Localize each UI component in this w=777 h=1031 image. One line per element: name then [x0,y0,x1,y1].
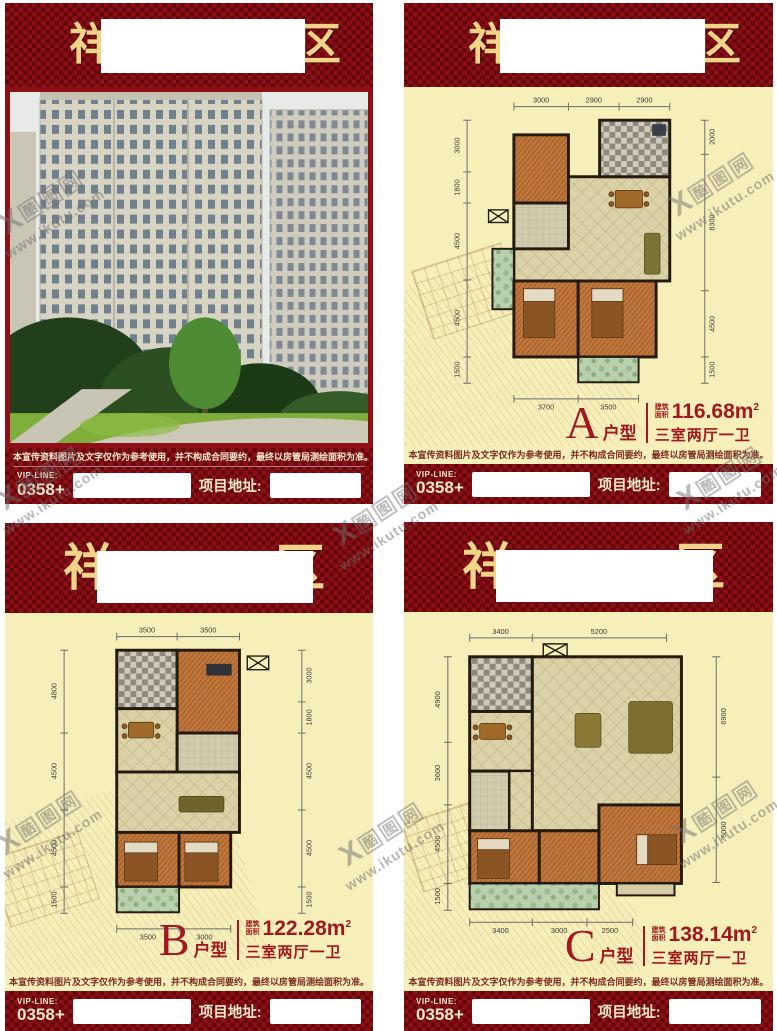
plan-type-suffix: 户型 [194,936,228,961]
shaft-symbol [247,656,268,670]
address-label: 项目地址: [598,474,661,495]
svg-text:2900: 2900 [636,96,652,105]
area-value: 138.14m2 [669,924,757,945]
card3-footer: VIP-LINE: 0358+ 项目地址: [5,991,373,1031]
svg-text:4500: 4500 [452,233,461,249]
label-divider [646,403,648,443]
card1-header: 祥 区 [5,3,373,87]
vip-line: VIP-LINE: 0358+ [17,998,65,1024]
flyer-card-plan-b: 祥 区 [5,523,373,1031]
svg-text:1800: 1800 [305,709,314,725]
redaction-box-phone [73,473,191,498]
disclaimer-text: 本宣传资料图片及文字仅作为参考使用，并不构成合同要约，最终以房管局测绘面积为准。 [404,974,773,991]
redaction-box-title [101,19,305,73]
redaction-box-title [97,551,313,603]
plan-type-suffix: 户型 [600,942,634,967]
vip-line: VIP-LINE: 0358+ [416,998,464,1024]
floorplan-a: 3000 2900 2900 3000 1800 4500 4500 1500 … [434,91,736,414]
svg-text:6000: 6000 [719,821,728,838]
contact-row: VIP-LINE: 0358+ 项目地址: [5,467,373,504]
plan-label-b: B 户型 建筑面积 122.28m2 三室两厅一卫 [159,918,351,962]
plan-label-c: C 户型 建筑面积 138.14m2 三室两厅一卫 [565,924,757,968]
svg-text:1500: 1500 [433,888,442,905]
svg-text:5200: 5200 [591,627,608,636]
card2-header: 祥 区 [404,3,773,87]
svg-text:3600: 3600 [433,765,442,782]
svg-text:3000: 3000 [533,96,549,105]
shaft-symbol [543,644,567,657]
svg-text:3000: 3000 [305,667,314,683]
card2-footer: VIP-LINE: 0358+ 项目地址: [404,464,773,504]
disclaimer-text: 本宣传资料图片及文字仅作为参考使用，并不构成合同要约，最终以房管局测绘面积为准。 [5,974,373,991]
flyer-card-plan-c: 祥 区 [404,522,773,1031]
redaction-box-title [500,19,705,73]
area-caption: 建筑面积 [246,921,260,937]
svg-text:1500: 1500 [708,361,717,377]
svg-text:2900: 2900 [586,96,602,105]
room-config: 三室两厅一卫 [652,947,757,968]
label-divider [643,926,645,966]
svg-text:1500: 1500 [305,891,314,907]
svg-text:3400: 3400 [492,627,509,636]
redaction-box-phone [472,472,590,497]
area-caption: 建筑面积 [652,927,666,943]
svg-text:3400: 3400 [492,926,509,935]
redaction-box-title [496,550,713,602]
redaction-box-address [669,999,761,1024]
svg-text:4500: 4500 [49,840,58,856]
plan-letter: A [565,403,598,442]
area-value: 122.28m2 [263,918,351,939]
redaction-box-address [270,473,361,498]
vip-line: VIP-LINE: 0358+ [416,471,464,497]
residential-photo [10,92,368,443]
redaction-box-phone [472,999,590,1024]
svg-text:1500: 1500 [49,891,58,907]
svg-text:4800: 4800 [49,683,58,699]
disclaimer-text: 本宣传资料图片及文字仅作为参考使用，并不构成合同要约，最终以房管局测绘面积为准。 [404,447,773,464]
plan-letter: B [159,920,190,959]
area-value: 116.68m2 [672,401,759,422]
svg-text:4500: 4500 [49,763,58,779]
svg-text:8300: 8300 [708,214,717,230]
svg-text:2000: 2000 [708,129,717,145]
svg-text:3500: 3500 [200,626,216,635]
room-config: 三室两厅一卫 [246,941,351,962]
shaft-symbol [489,210,508,223]
card1-footer: 本宣传资料图片及文字仅作为参考使用，并不构成合同要约，最终以房管局测绘面积为准。… [5,448,373,504]
floorplan-b: 3500 3500 4800 4500 4500 1500 3000 1800 … [31,621,333,944]
address-label: 项目地址: [199,475,262,496]
svg-text:4500: 4500 [305,840,314,856]
card1-photo-body [5,87,373,448]
svg-text:4500: 4500 [433,835,442,852]
plan-label-a: A 户型 建筑面积 116.68m2 三室两厅一卫 [565,401,759,445]
card3-header: 祥 区 [5,523,373,613]
flyer-card-plan-a: 祥 区 [404,3,773,504]
vip-number: 0358+ [17,481,65,499]
vip-line: VIP-LINE: 0358+ [17,472,65,498]
svg-text:3500: 3500 [139,626,155,635]
address-label: 项目地址: [598,1001,661,1022]
redaction-box-phone [73,999,191,1024]
redaction-box-address [270,999,361,1024]
svg-text:1500: 1500 [452,361,461,377]
card3-body: 3500 3500 4800 4500 4500 1500 3000 1800 … [5,613,373,974]
address-label: 项目地址: [199,1001,262,1022]
label-divider [237,920,239,960]
card2-body: 3000 2900 2900 3000 1800 4500 4500 1500 … [404,87,773,447]
plan-type-suffix: 户型 [603,419,637,444]
svg-text:4500: 4500 [305,763,314,779]
flyer-card-photo: 祥 区 本宣传资料图片及文字仅作为参考使用，并不构成合同要约，最终以房管局测绘面… [5,3,373,504]
svg-text:4900: 4900 [433,691,442,708]
svg-text:4500: 4500 [452,310,461,326]
card4-footer: VIP-LINE: 0358+ 项目地址: [404,991,773,1031]
svg-text:3500: 3500 [140,933,156,942]
svg-text:1800: 1800 [452,179,461,195]
redaction-box-address [669,472,761,497]
svg-text:4500: 4500 [708,316,717,332]
svg-text:3000: 3000 [452,137,461,153]
plan-letter: C [565,926,596,965]
disclaimer-text: 本宣传资料图片及文字仅作为参考使用，并不构成合同要约，最终以房管局测绘面积为准。 [13,449,365,467]
area-caption: 建筑面积 [655,404,669,420]
svg-text:3700: 3700 [538,403,554,412]
floorplan-c: 3400 5200 4900 3600 4500 1500 6900 6000 … [418,622,756,938]
room-config: 三室两厅一卫 [655,424,759,445]
svg-text:6900: 6900 [719,708,728,725]
card4-header: 祥 区 [404,522,773,612]
card4-body: 3400 5200 4900 3600 4500 1500 6900 6000 … [404,612,773,974]
